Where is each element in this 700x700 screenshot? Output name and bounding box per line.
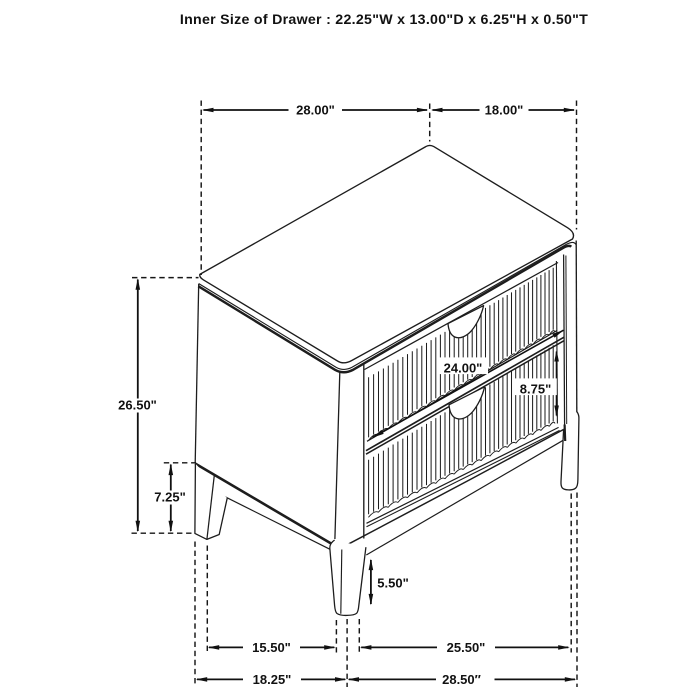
svg-text:8.75": 8.75" [520, 382, 551, 397]
svg-text:18.25": 18.25" [253, 672, 292, 687]
svg-text:Inner Size of Drawer : 22.25"W: Inner Size of Drawer : 22.25"W x 13.00"D… [180, 12, 588, 28]
svg-text:15.50": 15.50" [252, 640, 291, 655]
svg-text:28.00": 28.00" [296, 103, 335, 118]
svg-text:24.00": 24.00" [444, 361, 483, 376]
svg-text:28.50″: 28.50″ [442, 672, 481, 687]
svg-text:25.50": 25.50" [447, 640, 486, 655]
svg-text:18.00": 18.00" [485, 103, 524, 118]
svg-text:7.25": 7.25" [154, 490, 185, 505]
svg-text:26.50": 26.50" [118, 398, 157, 413]
svg-text:5.50": 5.50" [377, 576, 408, 591]
